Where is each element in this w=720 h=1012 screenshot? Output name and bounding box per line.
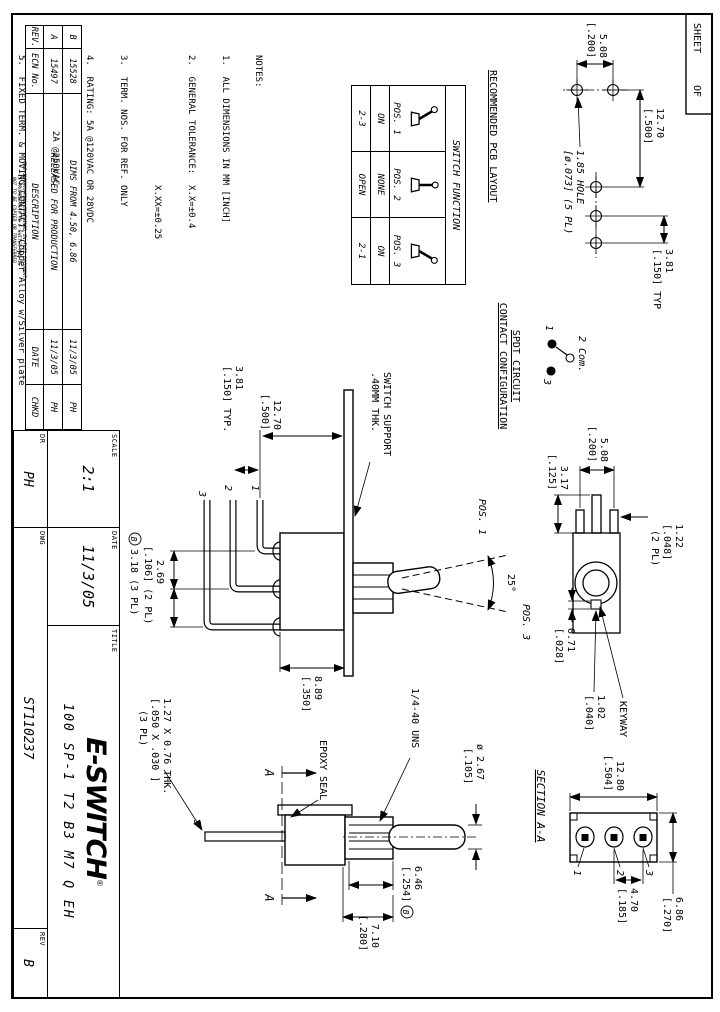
dim-12-70-in: [.500] [642, 108, 653, 144]
of-label: OF [691, 85, 702, 97]
pin-label-2: 2 [222, 485, 233, 491]
function-pos-1-cell: POS. 1 [389, 86, 445, 152]
note-line: X.XX=±0.25 [150, 55, 161, 386]
rev-a: A [44, 25, 63, 49]
side-pin-3-label: 3 [191, 819, 202, 826]
note-line: 3. TERM. NOS. FOR REF. ONLY [117, 55, 128, 386]
dim-3-17: 3.17 [558, 466, 569, 490]
dim-12-70-front-in: [.500] [259, 394, 270, 430]
dim-8-89: 8.89 [312, 676, 323, 700]
rev-cell: REV B [13, 929, 47, 997]
hole-callout-2: [ø.073] (5 PL) [562, 150, 573, 234]
dim-6-46: 6.46 [412, 866, 423, 890]
dr-cell: DR PH [13, 431, 47, 528]
dim-12-80-in: [.504] [602, 755, 613, 791]
dim-5-08-in: [.200] [585, 22, 596, 58]
section-term-2: 2 [614, 870, 625, 876]
function-pos-1-label: POS. 1 [391, 102, 401, 135]
note-line: 2. GENERAL TOLERANCE: X.X=±0.4 [184, 55, 195, 386]
keyway-end-view: 5.08 [.200] 3.17 [.125] 1.22 [.048] (2 P… [546, 426, 684, 737]
sheet-label: SHEET [691, 23, 702, 53]
revision-header-row: REV. ECN No. DESCRIPTION DATE CHKD [25, 25, 44, 430]
toggle-icon-pos2 [407, 168, 443, 202]
note-line: 4. RATING: 5A @120VAC OR 28VDC [83, 55, 94, 386]
dim-7-10-in: [.280] [357, 915, 368, 951]
pin-size-2: [.050 X .030 ] [149, 698, 160, 782]
section-arrow-a-2: A [262, 893, 276, 901]
dim-12-70: 12.70 [654, 108, 665, 138]
title-label: TITLE [110, 629, 118, 653]
dim-2-69-in: [.106] (2 PL) [142, 546, 153, 624]
dim-1-02: 1.02 [595, 695, 606, 719]
side-view: 3 A A 1/4-40 UNS EPOXY SEAL ø 2.67 [.105… [137, 688, 485, 951]
thread-callout: 1/4-40 UNS [409, 688, 420, 748]
dim-6-46-in: [.254] [400, 866, 411, 902]
function-on-2: NONE [370, 152, 389, 218]
pin-size-3: (3 PL) [137, 710, 148, 746]
dim-6-86-in: [.270] [661, 897, 672, 933]
pcb-hole [585, 176, 607, 198]
pin-label-3: 3 [196, 490, 207, 497]
toggle-lever [387, 566, 442, 595]
scale-cell: SCALE 2:1 [47, 431, 119, 528]
rev-b-ecn: 15528 [63, 49, 82, 94]
function-table-title: SWITCH FUNCTION [445, 86, 465, 284]
spdt-common-label: 2 Com. [576, 336, 587, 372]
dim-3-81-in: [.150] TYP [651, 249, 662, 309]
side-pin [205, 832, 285, 841]
dim-8-89-in: [.350] [300, 676, 311, 712]
section-arrow-a-1: A [262, 768, 276, 776]
part-number: 100 SP-1 T2 B3 M7 Q EH [60, 626, 75, 997]
support-callout-1: SWITCH SUPPORT [381, 372, 392, 456]
dim-2-69: 2.69 [154, 560, 165, 584]
pcb-layout-view: 5.08 [.200] 12.70 [.500] 3.81 [.150] TYP… [487, 22, 674, 309]
dim-1-02-in: [.040] [583, 695, 594, 731]
revision-row-a: A 15497 RELEASED FOR PRODUCTION 11/3/05 … [44, 25, 63, 430]
switch-body [280, 533, 344, 630]
dim-1-22: 1.22 [673, 524, 684, 548]
function-pos-3-label: POS. 3 [391, 235, 401, 268]
section-aa-title: SECTION A-A [534, 770, 547, 843]
dim-1-22-in: [.048] [661, 524, 672, 560]
scale-label: SCALE [110, 434, 118, 458]
support-callout-2: .40MM THK. [369, 372, 380, 432]
dim-12-80: 12.80 [614, 761, 625, 791]
function-on-1: ON [370, 86, 389, 152]
title-block: SCALE 2:1 DATE 11/3/05 TITLE E-SWITCH® 1… [12, 430, 120, 998]
pos-3-label: POS. 3 [520, 604, 531, 640]
desc-header: DESCRIPTION [25, 94, 44, 330]
rev-b-date: 11/3/05 [63, 330, 82, 385]
function-circuit-1: 2-3 [352, 86, 370, 152]
rev-a-date: 11/3/05 [44, 330, 63, 385]
pos-1-label: POS. 1 [476, 499, 487, 535]
dwg-number: ST110237 [20, 528, 35, 928]
proprietary-line-3: NOT TO BE COPIED OR TRANSFERRED [10, 112, 15, 328]
dim-4-70-in: [.185] [616, 888, 627, 924]
rev-header: REV. [25, 25, 44, 49]
section-term-3: 3 [643, 869, 654, 876]
pin-size-1: 1.27 X 0.76 THK. [161, 698, 172, 794]
registered-mark: ® [95, 879, 104, 886]
dim-7-10: 7.10 [369, 924, 380, 948]
dwg-cell: DWG ST110237 [13, 528, 47, 929]
rev-label: REV [38, 932, 46, 946]
bushing [353, 563, 393, 613]
dim-12-70-front: 12.70 [271, 400, 282, 430]
date-value: 11/3/05 [79, 528, 97, 625]
revision-table: B 15528 DIMS FROM 4.50, 6.86 11/3/05 PH … [25, 25, 82, 430]
rev-a-chkd: PH [44, 385, 63, 430]
section-aa-view: 3 2 1 12.80 [.504] 6.86 [.270] 4.70 [.18… [534, 755, 684, 933]
spdt-terminal-3: 3 [541, 378, 552, 385]
dr-value: PH [20, 431, 35, 527]
dim-5-08-b-in: [.200] [586, 426, 597, 462]
ecn-header: ECN No. [25, 49, 44, 94]
dim-3-81: 3.81 [663, 249, 674, 273]
dim-1-22-pl: (2 PL) [649, 530, 660, 566]
rev-flag-b: B [129, 537, 138, 542]
rev-value: B [20, 929, 35, 997]
side-bushing [345, 817, 393, 859]
toggle-icon-pos1 [407, 102, 443, 136]
terminal-pins [207, 500, 284, 627]
dim-dia-2-67: ø 2.67 [474, 744, 485, 780]
dim-6-86: 6.86 [673, 897, 684, 921]
notes-heading: NOTES: [252, 55, 263, 386]
epoxy-seal-callout: EPOXY SEAL [317, 740, 328, 800]
function-circuit-3: 2-1 [352, 218, 370, 284]
rev-a-ecn: 15497 [44, 49, 63, 94]
note-line: 1. ALL DIMENSIONS IN MM [INCH] [218, 55, 229, 386]
date-header: DATE [25, 330, 44, 385]
chkd-header: CHKD [25, 385, 44, 430]
eswitch-logo: E-SWITCH® [80, 626, 111, 997]
dim-0-71: 0.71 [565, 628, 576, 652]
rev-flag-b-2: B [401, 910, 410, 915]
dim-4-70: 4.70 [628, 888, 639, 912]
date-label: DATE [110, 531, 118, 550]
dwg-label: DWG [38, 531, 46, 545]
rev-a-desc: RELEASED FOR PRODUCTION [44, 94, 63, 330]
pcb-title: RECOMMENDED PCB LAYOUT [487, 70, 498, 202]
rev-b-chkd: PH [63, 385, 82, 430]
revision-row-b: B 15528 DIMS FROM 4.50, 6.86 11/3/05 PH [63, 25, 82, 430]
pin-label-1: 1 [249, 485, 260, 491]
dr-label: DR [38, 434, 46, 443]
angle-25: 25° [505, 574, 516, 592]
scale-value: 2:1 [79, 431, 97, 527]
dim-3-17-in: [.125] [546, 454, 557, 490]
function-on-3: ON [370, 218, 389, 284]
title-cell: TITLE E-SWITCH® 100 SP-1 T2 B3 M7 Q EH [47, 626, 119, 997]
rev-b-desc: DIMS FROM 4.50, 6.86 [63, 94, 82, 330]
sheet-of-box: SHEET OF [686, 14, 712, 114]
drawing-sheet-page: SHEET OF 5.08 [.200] 12.70 [.500] [0, 0, 720, 1012]
switch-function-table: SWITCH FUNCTION POS. 1 POS. 2 P [351, 85, 466, 285]
keyway-label: KEYWAY [617, 701, 628, 737]
hole-callout: 1.85 HOLE [574, 150, 585, 204]
rev-b: B [63, 25, 82, 49]
front-view: POS. 1 POS. 3 25° 1 2 3 12.70 [.500] 3.8… [128, 366, 531, 712]
function-pos-2-label: POS. 2 [391, 168, 401, 201]
spdt-diagram: 2 Com. 1 3 SPDT CIRCUIT CONTACT CONFIGUR… [497, 303, 587, 429]
pcb-hole [585, 205, 607, 227]
rotated-drawing-sheet: SHEET OF 5.08 [.200] 12.70 [.500] [0, 0, 720, 1012]
spdt-title-1: SPDT CIRCUIT [510, 330, 521, 402]
function-circuit-2: OPEN [352, 152, 370, 218]
side-body [285, 815, 345, 865]
spdt-title-2: CONTACT CONFIGURATION [497, 303, 508, 429]
function-pos-2-cell: POS. 2 [389, 152, 445, 218]
pcb-hole [585, 232, 607, 254]
toggle-icon-pos3 [407, 234, 443, 268]
proprietary-note: THE INFORMATION CONTAINED IN THIS DOCUME… [10, 112, 25, 328]
date-cell: DATE 11/3/05 [47, 528, 119, 626]
spdt-terminal-1: 1 [543, 325, 554, 331]
support-bracket [344, 390, 353, 676]
dim-0-71-in: [.028] [553, 628, 564, 664]
dim-5-08-b: 5.08 [598, 438, 609, 462]
dim-3-18: 3.18 (3 PL) [128, 549, 139, 615]
dim-dia-2-67-in: [.105] [462, 748, 473, 784]
dim-5-08: 5.08 [597, 34, 608, 58]
section-term-1: 1 [571, 870, 582, 876]
side-flange [278, 805, 352, 815]
function-pos-3-cell: POS. 3 [389, 218, 445, 284]
